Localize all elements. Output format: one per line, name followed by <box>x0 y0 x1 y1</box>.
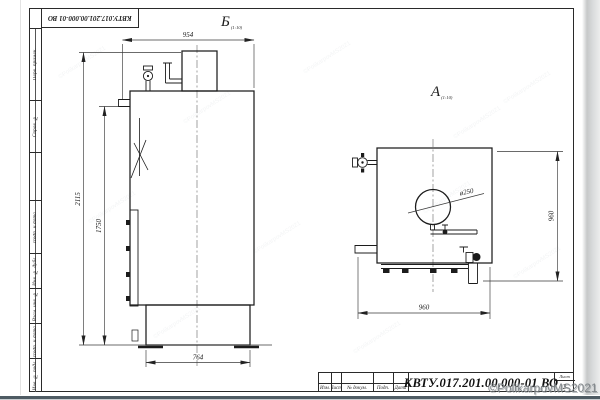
col-label-podp: Подп. <box>373 383 393 393</box>
col-label-izm: Изм. <box>319 383 331 393</box>
page-bottom-shadow <box>0 395 600 400</box>
base-foot <box>383 269 390 274</box>
dim-1750: 1750 <box>95 219 103 234</box>
view-b-label: Б(1:10) <box>220 14 243 30</box>
boiler-drawing: 954 2115 1750 764 ø250 960 960 Б(1:10) А… <box>0 0 600 400</box>
drain-valve-stem <box>442 225 448 230</box>
view-b-scale: (1:10) <box>231 25 243 30</box>
view-b-letter: Б <box>220 14 230 30</box>
drawing-sheet: ©PolikarpovMS2021 ©PolikarpovMS2021 ©Pol… <box>0 0 600 400</box>
dim-diameter-250: ø250 <box>458 187 475 198</box>
safety-valve-stem <box>146 81 150 91</box>
base-foot <box>430 269 437 274</box>
side-valve-center <box>361 161 363 163</box>
view-b-outline <box>130 51 254 345</box>
view-a-label: А(1:10) <box>430 84 453 100</box>
pump-stem <box>460 247 469 253</box>
pump-motor <box>473 253 481 261</box>
down-pipe <box>469 263 478 284</box>
ash-drawer-latch <box>132 330 138 341</box>
return-pipe-stub <box>355 246 377 254</box>
watermark-text: ©PolikarpovMS2021 <box>488 381 598 395</box>
door-bolt <box>126 246 130 251</box>
dimension-lines <box>79 40 563 367</box>
sheet-cell-label: Лист <box>554 373 575 380</box>
view-a-letter: А <box>430 84 441 100</box>
safety-valve-center <box>147 75 149 77</box>
base-foot <box>451 269 458 274</box>
door-bolt <box>126 220 130 225</box>
centerlines <box>197 45 433 366</box>
side-valve-tick-top <box>361 153 364 157</box>
base-foot <box>402 269 409 274</box>
col-label-list: Лист <box>331 383 341 393</box>
pump-body <box>466 253 473 263</box>
side-valve-flange <box>353 158 358 167</box>
furnace-door <box>130 210 138 306</box>
page-right-shadow <box>582 0 600 400</box>
dim-960-width: 960 <box>419 304 430 312</box>
dim-954: 954 <box>183 31 194 39</box>
side-valve-tick-bottom <box>361 169 364 173</box>
col-label-dokum: № докум. <box>341 383 373 393</box>
door-bolt <box>126 296 130 301</box>
safety-valve-cap <box>144 66 153 70</box>
dim-2115: 2115 <box>74 192 82 206</box>
door-lever <box>131 118 148 178</box>
drain-pipe <box>431 225 478 235</box>
side-valve-pipe <box>368 161 378 165</box>
outlet-pipe-stub <box>119 100 131 107</box>
draft-pipe-elbow <box>163 63 182 83</box>
view-a-details <box>353 153 481 284</box>
dim-960-height: 960 <box>548 210 556 221</box>
door-bolt <box>126 272 130 277</box>
dim-764: 764 <box>193 354 204 362</box>
view-a-outline <box>377 148 492 263</box>
base-frame <box>381 265 468 269</box>
drain-valve <box>443 230 448 235</box>
view-a-scale: (1:10) <box>441 95 453 100</box>
